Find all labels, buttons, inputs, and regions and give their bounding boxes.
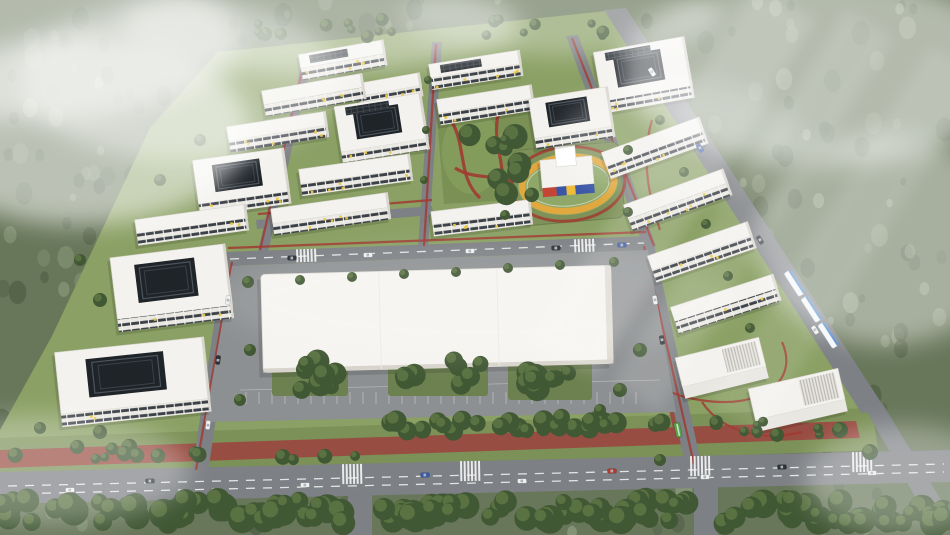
- tree-highlight: [470, 416, 479, 425]
- tree-highlight: [554, 410, 563, 419]
- tree-highlight: [557, 495, 566, 504]
- tree-highlight: [562, 366, 570, 374]
- crosswalk-bar: [701, 456, 703, 476]
- balcony-accent: [154, 318, 157, 321]
- crosswalk-bar: [342, 464, 344, 484]
- car: [205, 420, 211, 429]
- tree-highlight: [525, 371, 536, 382]
- car-windshield: [703, 476, 706, 479]
- tree-highlight: [276, 450, 285, 459]
- forest-tree: [9, 281, 26, 305]
- crosswalk-bar: [349, 464, 351, 484]
- tree-highlight: [262, 501, 278, 517]
- tree-highlight: [726, 508, 738, 520]
- balcony-accent: [339, 182, 342, 185]
- balcony-accent: [454, 119, 457, 122]
- tree-highlight: [526, 189, 534, 197]
- tree-highlight: [833, 423, 842, 432]
- crosswalk-bar: [697, 456, 699, 476]
- balcony-accent: [364, 151, 367, 154]
- balcony-accent: [276, 197, 279, 200]
- tree-highlight: [278, 496, 287, 505]
- balcony-accent: [463, 78, 466, 81]
- crosswalk-bar: [464, 461, 466, 481]
- tree-highlight: [520, 424, 528, 432]
- tree-highlight: [656, 491, 669, 504]
- balcony-accent: [412, 89, 415, 92]
- crosswalk-bar: [353, 464, 355, 484]
- crosswalk-bar: [708, 456, 710, 476]
- balcony-accent: [320, 134, 323, 137]
- crosswalk-bar: [478, 461, 480, 481]
- car-windshield: [303, 484, 306, 487]
- tree-highlight: [702, 220, 708, 226]
- kindergarten-color-band: [566, 185, 576, 195]
- crosswalk-bar: [694, 456, 696, 476]
- tree-highlight: [425, 77, 429, 81]
- car-windshield: [520, 480, 523, 483]
- tree-highlight: [654, 415, 664, 425]
- forest-tree: [83, 227, 96, 245]
- tree-highlight: [235, 395, 242, 402]
- car-windshield: [610, 470, 613, 473]
- tree-highlight: [375, 499, 387, 511]
- balcony-accent: [453, 224, 456, 227]
- tree-highlight: [192, 448, 201, 457]
- crosswalk-bar: [356, 464, 358, 484]
- tree-highlight: [351, 452, 356, 457]
- balcony-accent: [230, 222, 233, 225]
- tree-highlight: [230, 507, 246, 523]
- tree-highlight: [634, 503, 647, 516]
- tree-highlight: [496, 492, 509, 505]
- tree-highlight: [742, 498, 754, 510]
- balcony-accent: [328, 188, 331, 191]
- tree-highlight: [740, 427, 745, 432]
- tree-highlight: [454, 412, 465, 423]
- balcony-accent: [345, 217, 348, 220]
- balcony-accent: [339, 215, 342, 218]
- tree-highlight: [421, 177, 425, 181]
- tree-highlight: [245, 503, 256, 514]
- balcony-accent: [495, 225, 498, 228]
- balcony-accent: [219, 313, 222, 316]
- tree-highlight: [423, 501, 434, 512]
- tree-highlight: [299, 357, 308, 366]
- forest-tree: [40, 271, 49, 283]
- tree-highlight: [599, 419, 607, 427]
- tree-highlight: [311, 498, 322, 509]
- forest-tree: [57, 246, 74, 269]
- tree-highlight: [207, 490, 221, 504]
- balcony-accent: [311, 191, 314, 194]
- crosswalk-bar: [460, 461, 462, 481]
- car-windshield: [780, 466, 783, 469]
- crosswalk-bar: [346, 464, 348, 484]
- car: [420, 473, 429, 478]
- car-windshield: [216, 359, 219, 362]
- tree-highlight: [814, 424, 819, 429]
- balcony-accent: [342, 187, 345, 190]
- balcony-accent: [496, 75, 499, 78]
- tree-highlight: [245, 345, 252, 352]
- tree-highlight: [711, 418, 718, 425]
- tree-highlight: [294, 382, 304, 392]
- kindergarten-color-band: [542, 187, 557, 197]
- tree-highlight: [387, 412, 399, 424]
- tree-highlight: [289, 455, 295, 461]
- crosswalk-bar: [690, 456, 692, 476]
- forest-tree: [4, 226, 17, 243]
- courtyard-building: [52, 337, 212, 431]
- tree-highlight: [655, 455, 662, 462]
- balcony-accent: [90, 415, 93, 418]
- balcony-accent: [323, 218, 326, 221]
- tree-highlight: [535, 510, 546, 521]
- balcony-accent: [505, 109, 508, 112]
- balcony-accent: [308, 226, 311, 229]
- tree-highlight: [496, 183, 509, 196]
- tree-highlight: [315, 365, 327, 377]
- tree-highlight: [609, 508, 625, 524]
- forest-tree: [58, 282, 69, 297]
- tree-highlight: [487, 137, 497, 147]
- tree-highlight: [333, 513, 346, 526]
- tree-highlight: [516, 508, 530, 522]
- forest-tree: [37, 249, 50, 266]
- balcony-accent: [444, 116, 447, 119]
- balcony-accent: [436, 86, 439, 89]
- kindergarten-color-band: [575, 184, 595, 195]
- tree-highlight: [483, 509, 493, 519]
- car: [777, 465, 786, 470]
- tree-highlight: [783, 492, 794, 503]
- tree-highlight: [94, 294, 102, 302]
- tree-highlight: [746, 324, 752, 330]
- car: [700, 475, 709, 480]
- balcony-accent: [405, 174, 408, 177]
- tree-highlight: [501, 136, 507, 142]
- tree-highlight: [535, 412, 547, 424]
- tree-highlight: [462, 368, 473, 379]
- balcony-accent: [331, 219, 334, 222]
- tree-highlight: [397, 370, 408, 381]
- tree-highlight: [306, 509, 317, 520]
- tree-highlight: [436, 418, 445, 427]
- kindergarten-color-band: [556, 186, 567, 196]
- tree-highlight: [400, 505, 415, 520]
- tree-highlight: [175, 491, 188, 504]
- crosswalk-bar: [471, 461, 473, 481]
- car: [607, 469, 616, 474]
- courtyard: [85, 351, 167, 397]
- balcony-accent: [465, 225, 468, 228]
- tree-highlight: [582, 505, 594, 517]
- tree-highlight: [509, 162, 521, 174]
- balcony-accent: [389, 151, 392, 154]
- tree-highlight: [595, 405, 602, 412]
- balcony-accent: [513, 71, 516, 74]
- tree-highlight: [489, 170, 501, 182]
- car: [215, 355, 221, 364]
- balcony-accent: [266, 200, 269, 203]
- crosswalk-bar: [704, 456, 706, 476]
- balcony-accent: [340, 94, 343, 97]
- balcony-accent: [210, 204, 213, 207]
- tree-highlight: [545, 371, 555, 381]
- balcony-accent: [385, 94, 388, 97]
- car-windshield: [206, 424, 209, 427]
- tree-highlight: [501, 211, 507, 217]
- balcony-accent: [314, 131, 317, 134]
- tree-highlight: [75, 255, 82, 262]
- crosswalk-bar: [474, 461, 476, 481]
- tree-highlight: [318, 450, 326, 458]
- car: [300, 483, 309, 488]
- balcony-accent: [202, 314, 205, 317]
- tree-highlight: [442, 504, 453, 515]
- tree-highlight: [493, 419, 503, 429]
- crosswalk-bar: [360, 464, 362, 484]
- tree-highlight: [771, 429, 779, 437]
- balcony-accent: [279, 200, 282, 203]
- scene-canvas: [0, 0, 950, 535]
- tree-highlight: [662, 512, 672, 522]
- tree-highlight: [460, 125, 472, 137]
- tree-highlight: [583, 414, 593, 424]
- masterplan-aerial-render: [0, 0, 950, 535]
- crosswalk-bar: [467, 461, 469, 481]
- balcony-accent: [516, 70, 519, 73]
- car: [517, 479, 526, 484]
- balcony-accent: [547, 143, 550, 146]
- car-windshield: [423, 474, 426, 477]
- balcony-accent: [349, 155, 352, 158]
- tree-highlight: [811, 508, 820, 517]
- balcony-accent: [238, 223, 241, 226]
- tree-highlight: [669, 498, 678, 507]
- courtyard-building: [107, 244, 235, 336]
- tree-highlight: [423, 127, 427, 131]
